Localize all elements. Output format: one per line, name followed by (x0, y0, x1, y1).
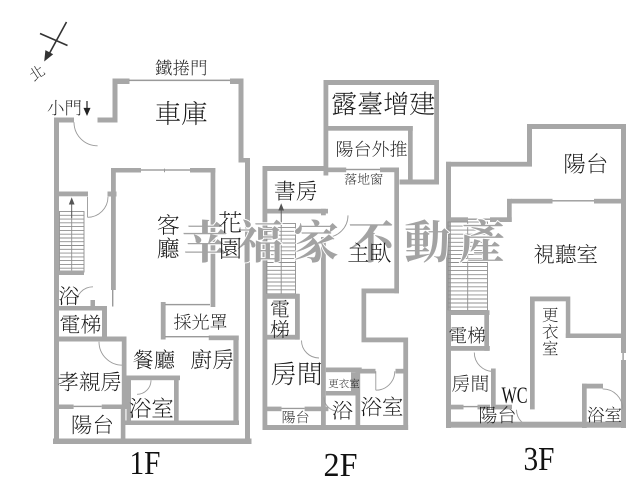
svg-text:WC: WC (502, 383, 528, 408)
svg-text:3F: 3F (524, 441, 555, 478)
svg-text:2F: 2F (324, 447, 358, 480)
svg-text:1F: 1F (130, 445, 161, 480)
